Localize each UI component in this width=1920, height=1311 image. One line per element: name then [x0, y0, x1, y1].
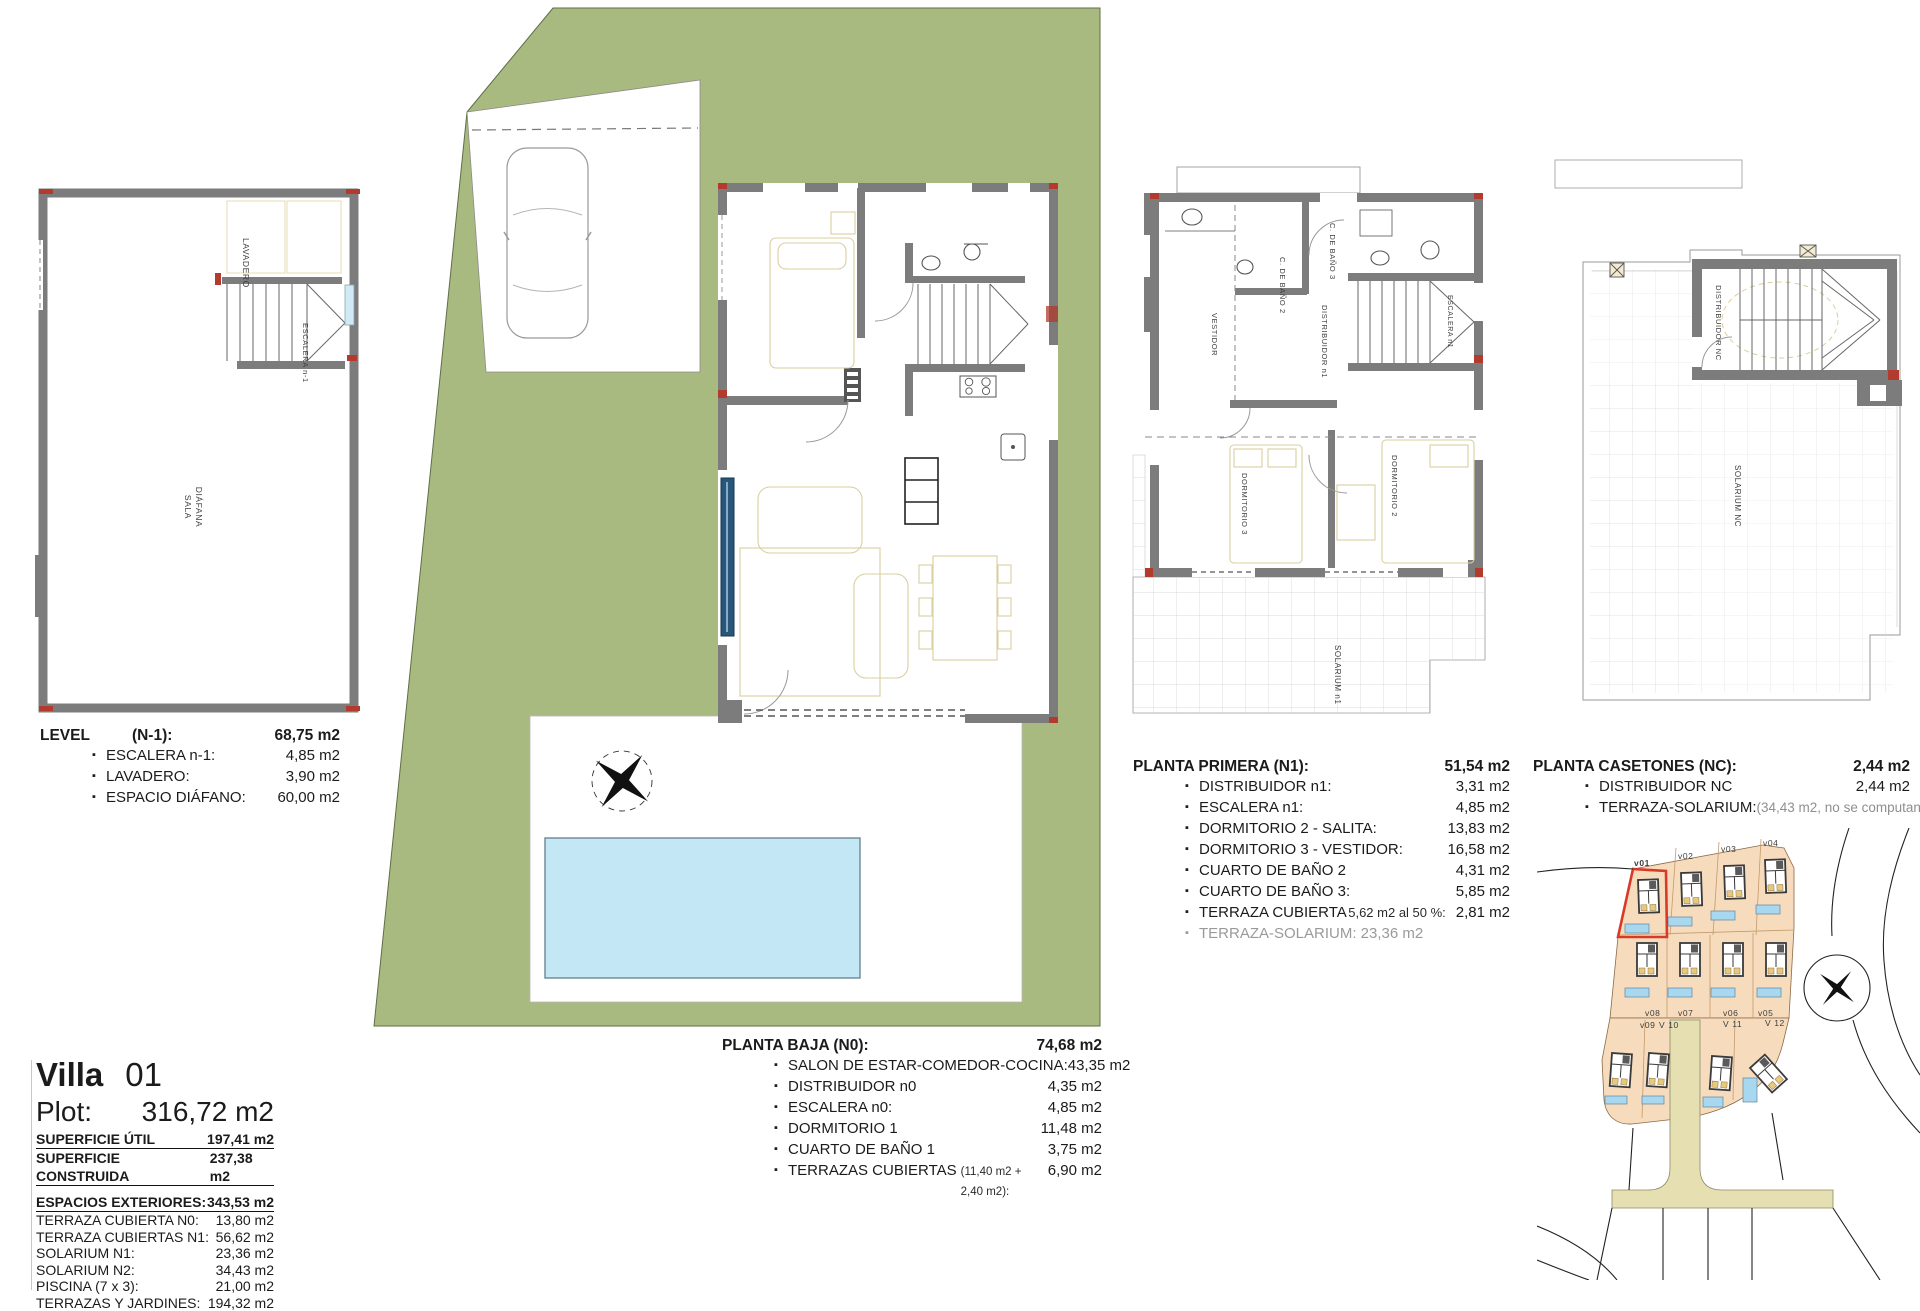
- exterior-row: TERRAZA CUBIERTAS N1:56,62 m2: [36, 1229, 274, 1246]
- ground-floor-plan: [718, 183, 1058, 723]
- site-location-map: v01 v02 v03 v04 v08 v07 v06 v05 v09 V 10…: [1537, 828, 1920, 1280]
- wall-stub: [35, 555, 43, 617]
- area-row: DISTRIBUIDOR n04,35 m2: [722, 1077, 1102, 1098]
- radiator: [844, 368, 861, 402]
- roof-outline-box: [1177, 167, 1360, 193]
- roof-edge-box: [1555, 160, 1742, 188]
- escalera-n1-label: ESCALERA n1: [1446, 295, 1453, 348]
- level-title: LEVEL: [40, 726, 90, 746]
- surface-row: SUPERFICIE CONSTRUIDA 237,38 m2: [36, 1149, 274, 1186]
- label-v12: V 12: [1765, 1018, 1785, 1028]
- area-row: SALON DE ESTAR-COMEDOR-COCINA:43,35 m2: [722, 1056, 1102, 1077]
- solarium-n1-tiles: [1133, 577, 1485, 713]
- area-row: ESCALERA n0:4,85 m2: [722, 1098, 1102, 1119]
- villa-title: Villa01: [36, 1056, 274, 1094]
- roundabout: [1804, 955, 1870, 1021]
- casetones-plan: DISTRIBUIDOR NC SOLARIUM NC: [1540, 155, 1920, 755]
- surface-row: SUPERFICIE ÚTIL 197,41 m2: [36, 1130, 274, 1149]
- exterior-row: PISCINA (7 x 3):21,00 m2: [36, 1278, 274, 1295]
- plot-label: Plot:: [36, 1094, 92, 1130]
- stair-window: [345, 285, 354, 325]
- pool: [545, 838, 860, 978]
- label-v05: v05: [1758, 1008, 1774, 1018]
- solarium-n1-label: SOLARIUM n1: [1333, 645, 1342, 705]
- exterior-row: SOLARIUM N2:34,43 m2: [36, 1262, 274, 1279]
- label-v08: v08: [1645, 1008, 1661, 1018]
- villa-number: 01: [125, 1056, 162, 1093]
- area-row: DORMITORIO 111,48 m2: [722, 1119, 1102, 1140]
- car-outline: [504, 148, 591, 338]
- bano3-label: C. DE BAÑO 3: [1328, 223, 1337, 280]
- area-row: TERRAZA CUBIERTA5,62 m2 al 50 %:2,81 m2: [1133, 903, 1510, 924]
- dormitorio3-label: DORMITORIO 3: [1240, 473, 1249, 535]
- basement-outer-wall: [43, 193, 354, 708]
- area-row: CUARTO DE BAÑO 24,31 m2: [1133, 861, 1510, 882]
- exterior-row: SOLARIUM N1:23,36 m2: [36, 1245, 274, 1262]
- planta-primera-summary: PLANTA PRIMERA (N1): 51,54 m2 DISTRIBUID…: [1133, 757, 1510, 945]
- label-v03: v03: [1721, 844, 1737, 854]
- nc-total: 2,44 m2: [1853, 757, 1910, 777]
- label-v09: v09: [1640, 1020, 1656, 1030]
- margin-line: [31, 1060, 32, 1290]
- n1-title-row: PLANTA PRIMERA (N1): 51,54 m2: [1133, 757, 1510, 777]
- label-v10: V 10: [1659, 1020, 1679, 1030]
- n0-title-row: PLANTA BAJA (N0): 74,68 m2: [722, 1036, 1102, 1056]
- level-n1-summary: LEVEL (N-1): 68,75 m2 ESCALERA n-1:4,85 …: [40, 726, 340, 809]
- area-row: DORMITORIO 3 - VESTIDOR:16,58 m2: [1133, 840, 1510, 861]
- area-row: DISTRIBUIDOR NC2,44 m2: [1533, 777, 1910, 798]
- site-plan: [368, 0, 1108, 1032]
- plan-sheet: { "colors": { "plot_green": "#a8ba80", "…: [0, 0, 1920, 1280]
- vestidor-label: VESTIDOR: [1210, 313, 1219, 356]
- label-v02: v02: [1678, 851, 1694, 861]
- n0-title: PLANTA BAJA (N0):: [722, 1036, 869, 1056]
- area-row: ESCALERA n1:4,85 m2: [1133, 798, 1510, 819]
- villa-plot-row: Plot: 316,72 m2: [36, 1094, 274, 1130]
- planta-baja-summary: PLANTA BAJA (N0): 74,68 m2 SALON DE ESTA…: [722, 1036, 1102, 1202]
- area-row: CUARTO DE BAÑO 13,75 m2: [722, 1140, 1102, 1161]
- distribuidor-nc-label: DISTRIBUIDOR NC: [1714, 285, 1723, 361]
- solarium-nc-label: SOLARIUM NC: [1733, 465, 1742, 527]
- plot-value: 316,72 m2: [142, 1094, 274, 1130]
- area-row-muted: TERRAZA-SOLARIUM: 23,36 m2: [1133, 924, 1510, 945]
- label-v11: V 11: [1723, 1019, 1742, 1029]
- villa-name: Villa: [36, 1056, 103, 1093]
- side-terrace-tiles: [1133, 455, 1145, 577]
- basement-floor-plan: LAVADERO ESCALERA n-1 SALA DIÁFANA: [35, 185, 365, 715]
- area-row: DORMITORIO 2 - SALITA:13,83 m2: [1133, 819, 1510, 840]
- label-v01: v01: [1634, 858, 1650, 868]
- area-row: CUARTO DE BAÑO 3:5,85 m2: [1133, 882, 1510, 903]
- driveway: [467, 80, 700, 372]
- house-footprint: [718, 183, 1058, 723]
- nc-stairwell: DISTRIBUIDOR NC: [1692, 259, 1897, 380]
- sliding-door: [721, 478, 734, 636]
- area-row: TERRAZAS CUBIERTAS(11,40 m2 + 2,40 m2):6…: [722, 1161, 1102, 1202]
- nc-title: PLANTA CASETONES (NC):: [1533, 757, 1737, 777]
- nc-title-row: PLANTA CASETONES (NC): 2,44 m2: [1533, 757, 1910, 777]
- n1-total: 51,54 m2: [1445, 757, 1511, 777]
- area-row: LAVADERO:3,90 m2: [40, 767, 340, 788]
- exterior-row: TERRAZA CUBIERTA N0:13,80 m2: [36, 1212, 274, 1229]
- exterior-row: TERRAZAS Y JARDINES:194,32 m2: [36, 1295, 274, 1311]
- area-row: ESPACIO DIÁFANO:60,00 m2: [40, 788, 340, 809]
- escalera-n-1-label: ESCALERA n-1: [301, 323, 310, 383]
- solarium-nc-tiles-main: [1590, 383, 1893, 693]
- distribuidor-n1-label: DISTRIBUIDOR n1: [1320, 305, 1329, 378]
- sala-label-2: DIÁFANA: [194, 487, 204, 528]
- bano2-label: C. DE BAÑO 2: [1278, 257, 1287, 314]
- level-total: 68,75 m2: [275, 726, 341, 746]
- label-v07: v07: [1678, 1008, 1694, 1018]
- level-code: (N-1):: [132, 726, 172, 746]
- area-row: ESCALERA n-1:4,85 m2: [40, 746, 340, 767]
- dormitorio2-label: DORMITORIO 2: [1390, 455, 1399, 517]
- area-row: TERRAZA-SOLARIUM:(34,43 m2, no se comput…: [1533, 798, 1910, 819]
- planta-casetones-summary: PLANTA CASETONES (NC): 2,44 m2 DISTRIBUI…: [1533, 757, 1910, 819]
- lavadero-label: LAVADERO: [241, 238, 251, 288]
- sala-label-1: SALA: [183, 495, 193, 519]
- n1-title: PLANTA PRIMERA (N1):: [1133, 757, 1309, 777]
- villa-info-block: Villa01 Plot: 316,72 m2 SUPERFICIE ÚTIL …: [36, 1056, 274, 1311]
- first-floor-plan: C. DE BAÑO 3 C. DE BAÑO 2 VESTIDOR DISTR…: [1130, 155, 1520, 755]
- n0-total: 74,68 m2: [1037, 1036, 1103, 1056]
- area-row: DISTRIBUIDOR n1:3,31 m2: [1133, 777, 1510, 798]
- level-title-row: LEVEL (N-1): 68,75 m2: [40, 726, 340, 746]
- exteriors-header: ESPACIOS EXTERIORES: 343,53 m2: [36, 1193, 274, 1212]
- label-v06: v06: [1723, 1008, 1739, 1018]
- label-v04: v04: [1763, 838, 1779, 848]
